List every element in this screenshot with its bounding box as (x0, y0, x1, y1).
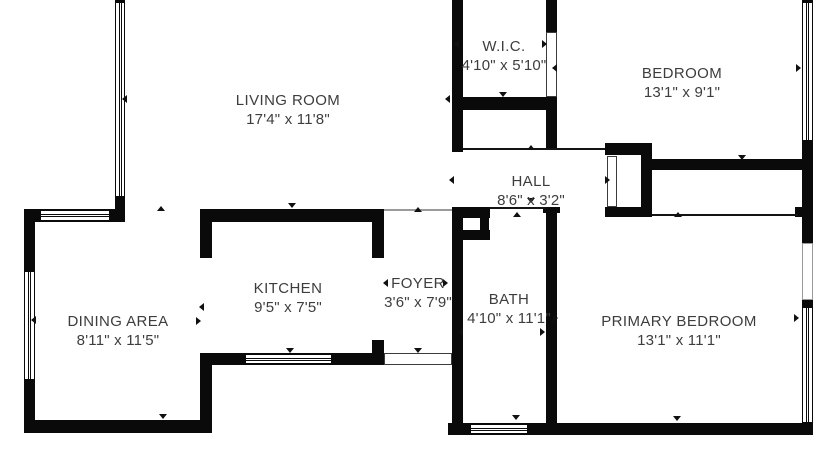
wall-segment (605, 207, 652, 217)
wall-segment (462, 207, 490, 218)
room-label-dining-area: DINING AREA8'11" x 11'5" (67, 312, 168, 350)
room-dimensions: 8'6" x 3'2" (497, 191, 565, 210)
direction-marker-icon (445, 95, 450, 103)
room-label-primary-bedroom: PRIMARY BEDROOM13'1" x 11'1" (601, 312, 756, 350)
direction-marker-icon (673, 416, 681, 421)
room-name: BEDROOM (642, 64, 722, 83)
window (802, 2, 813, 141)
window (24, 271, 35, 380)
direction-marker-icon (414, 348, 422, 353)
room-name: LIVING ROOM (236, 91, 340, 110)
room-dimensions: 4'10" x 5'10" (462, 56, 547, 75)
wall-segment (802, 300, 813, 307)
direction-marker-icon (794, 314, 799, 322)
direction-marker-icon (454, 40, 459, 48)
window (470, 424, 528, 434)
room-label-bedroom: BEDROOM13'1" x 9'1" (642, 64, 722, 102)
direction-marker-icon (553, 314, 558, 322)
direction-marker-icon (199, 303, 204, 311)
room-dimensions: 8'11" x 11'5" (67, 331, 168, 350)
room-label-kitchen: KITCHEN9'5" x 7'5" (254, 279, 323, 317)
door-opening (802, 243, 813, 300)
direction-marker-icon (31, 316, 36, 324)
direction-marker-icon (738, 155, 746, 160)
direction-marker-icon (540, 328, 545, 336)
direction-marker-icon (499, 92, 507, 97)
room-dimensions: 17'4" x 11'8" (236, 110, 340, 129)
room-dimensions: 13'1" x 11'1" (601, 331, 756, 350)
direction-marker-icon (288, 203, 296, 208)
wall-segment (200, 209, 384, 222)
wall-segment (546, 0, 557, 32)
direction-marker-icon (157, 206, 165, 211)
room-name: KITCHEN (254, 279, 323, 298)
direction-marker-icon (196, 317, 201, 325)
room-label-wic: W.I.C.4'10" x 5'10" (462, 37, 547, 75)
wall-segment (372, 222, 384, 258)
wall-segment (460, 230, 490, 240)
room-dimensions: 3'6" x 7'9" (384, 293, 452, 312)
direction-marker-icon (458, 328, 463, 336)
room-label-living-room: LIVING ROOM17'4" x 11'8" (236, 91, 340, 129)
window (40, 210, 110, 221)
room-label-foyer: FOYER3'6" x 7'9" (384, 274, 452, 312)
room-label-bath: BATH4'10" x 11'1" (467, 290, 551, 328)
direction-marker-icon (159, 414, 167, 419)
direction-marker-icon (513, 212, 521, 217)
direction-marker-icon (796, 64, 801, 72)
direction-marker-icon (527, 145, 535, 150)
wall-segment (24, 420, 212, 433)
direction-marker-icon (449, 176, 454, 184)
direction-marker-icon (552, 64, 557, 72)
room-dimensions: 4'10" x 11'1" (467, 309, 551, 328)
room-name: W.I.C. (462, 37, 547, 56)
direction-marker-icon (605, 176, 610, 184)
direction-marker-icon (512, 415, 520, 420)
room-label-hall: HALL8'6" x 3'2" (497, 172, 565, 210)
room-name: PRIMARY BEDROOM (601, 312, 756, 331)
room-name: DINING AREA (67, 312, 168, 331)
window (245, 354, 332, 364)
room-name: FOYER (384, 274, 452, 293)
wall-segment (452, 97, 557, 110)
room-dimensions: 13'1" x 9'1" (642, 83, 722, 102)
room-name: BATH (467, 290, 551, 309)
room-name: HALL (497, 172, 565, 191)
window (802, 307, 813, 423)
wall-segment (452, 0, 463, 152)
floor-plan: LIVING ROOM17'4" x 11'8"W.I.C.4'10" x 5'… (0, 0, 835, 467)
direction-marker-icon (674, 212, 682, 217)
direction-marker-icon (414, 207, 422, 212)
wall-segment (641, 143, 652, 217)
direction-marker-icon (122, 95, 127, 103)
room-dimensions: 9'5" x 7'5" (254, 298, 323, 317)
direction-marker-icon (286, 348, 294, 353)
wall-segment (200, 355, 212, 423)
wall-segment (650, 159, 813, 170)
wall-segment (802, 141, 813, 243)
door-opening (384, 353, 452, 365)
